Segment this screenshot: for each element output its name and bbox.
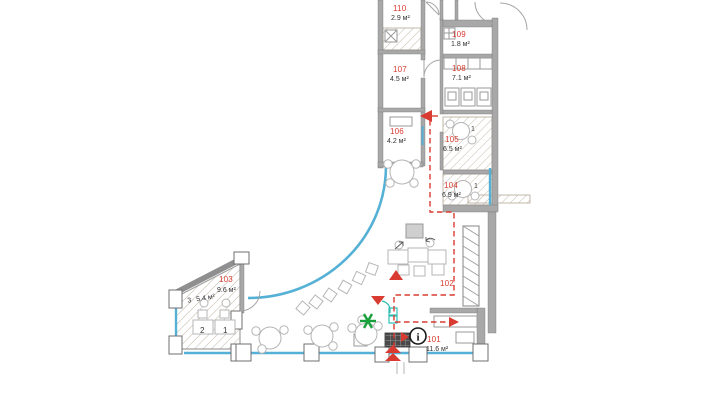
room-106-area: 4.2 м² xyxy=(387,138,406,145)
zone-102-tables xyxy=(388,224,446,276)
room-104-number: 104 xyxy=(444,181,458,190)
item-105-number: 1 xyxy=(471,126,475,133)
info-icon-glyph: i xyxy=(416,332,419,344)
entry-threshold xyxy=(397,362,404,374)
curved-glass-wall xyxy=(248,166,386,298)
door-arc-107 xyxy=(424,60,440,77)
floor-plan-canvas: i 110 2.9 м² 109 1.8 м² 107 4.5 м² 108 7… xyxy=(0,0,720,405)
room-105-area: 6.5 м² xyxy=(443,146,462,153)
room-110-number: 110 xyxy=(393,4,407,13)
door-arc-top-right xyxy=(500,3,527,30)
room-107-number: 107 xyxy=(393,65,407,74)
entry-mat xyxy=(385,333,410,347)
room-106-number: 106 xyxy=(390,127,404,136)
nook-table xyxy=(384,160,420,187)
desk-left-number: 2 xyxy=(200,326,205,335)
bar-counter xyxy=(463,226,479,306)
room-102-number: 102 xyxy=(440,279,454,288)
room-103-area: 9.6 м² xyxy=(217,287,236,294)
room-101-cabinet xyxy=(456,332,474,343)
curve-tables xyxy=(296,263,378,315)
item-104-number: 1 xyxy=(474,183,478,190)
room-109-number: 109 xyxy=(452,30,466,39)
room-108-number: 108 xyxy=(452,64,466,73)
room-108-area: 7.1 м² xyxy=(452,75,471,82)
info-icon: i xyxy=(410,328,426,344)
room-101-number: 101 xyxy=(427,335,441,344)
teal-accents xyxy=(382,301,397,323)
floor-plan-page: i 110 2.9 м² 109 1.8 м² 107 4.5 м² 108 7… xyxy=(0,0,720,405)
room-105-number: 105 xyxy=(445,135,459,144)
room-104-area: 6.9 м² xyxy=(442,192,461,199)
desk-right-number: 1 xyxy=(223,326,228,335)
route-arrow-down-icon xyxy=(371,296,385,305)
room-101-area: 11.6 м² xyxy=(426,346,449,353)
room-107-area: 4.5 м² xyxy=(390,76,409,83)
room-110-area: 2.9 м² xyxy=(391,15,410,22)
room-109-area: 1.8 м² xyxy=(451,41,470,48)
service-block xyxy=(406,224,423,238)
room-103-number: 103 xyxy=(219,275,233,284)
room-106-shelf xyxy=(390,117,412,126)
